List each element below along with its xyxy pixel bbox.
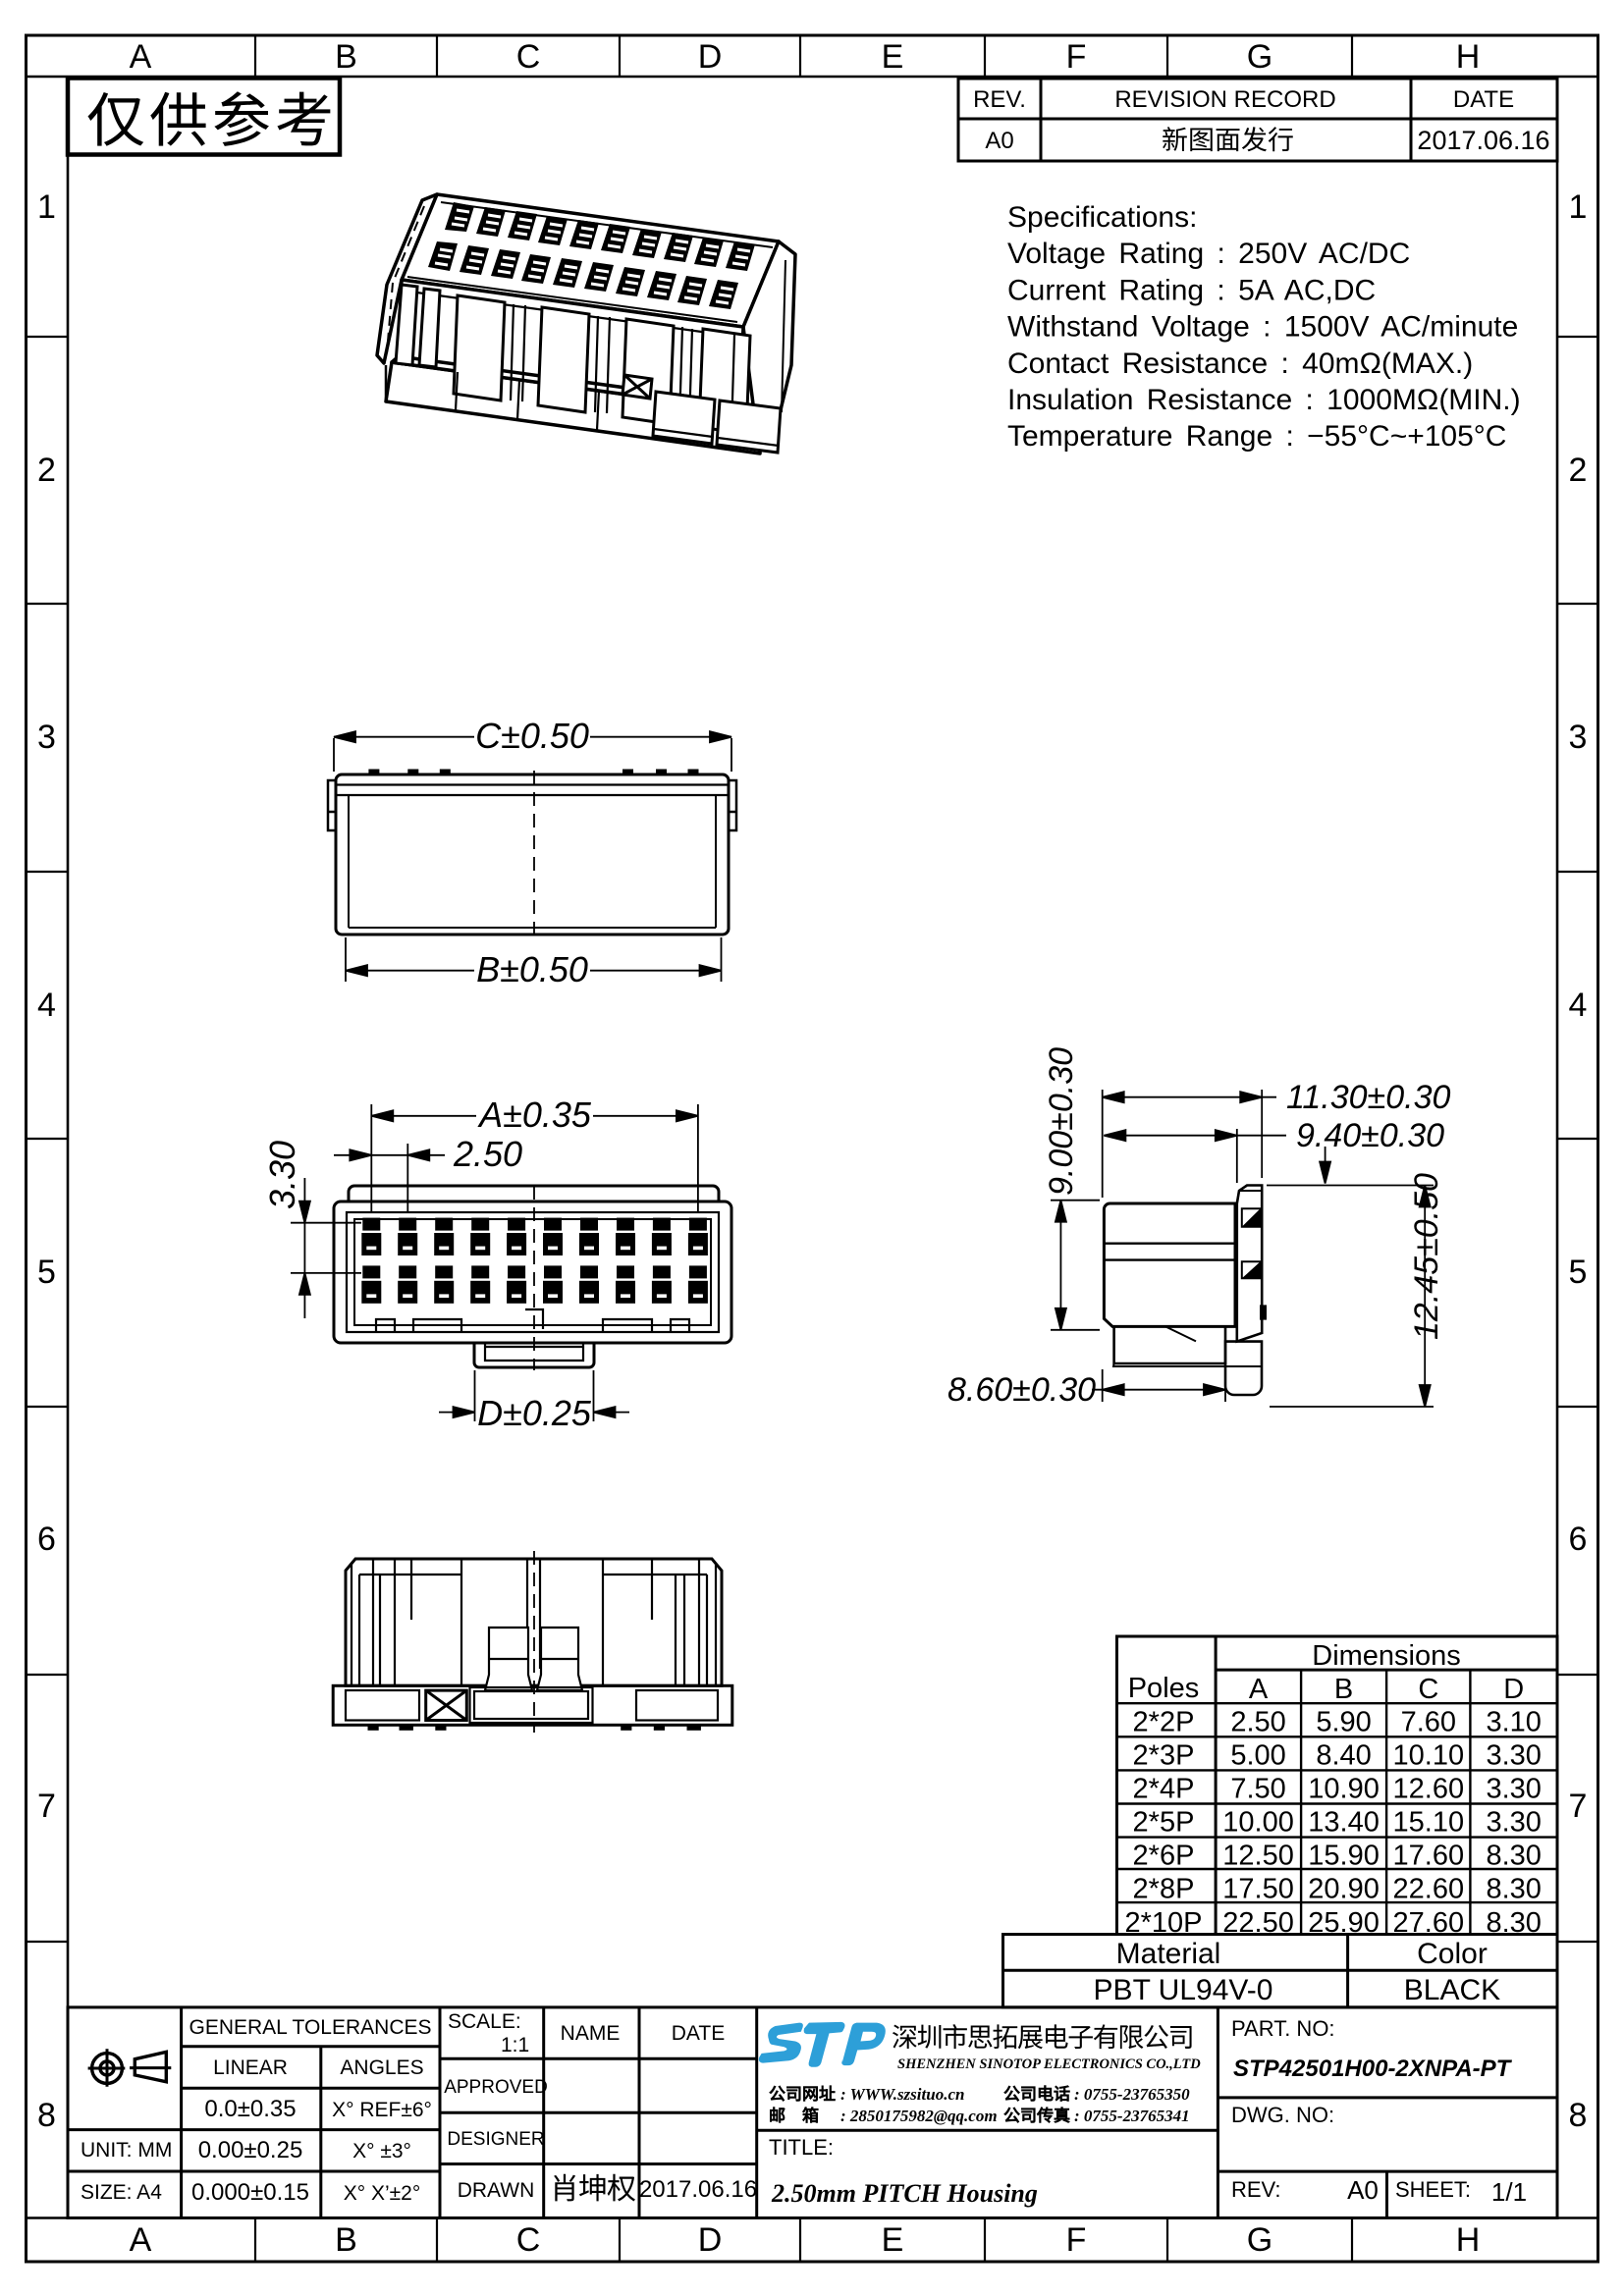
svg-text:2.50: 2.50 — [453, 1134, 522, 1174]
svg-text:7: 7 — [37, 1788, 56, 1825]
svg-text:: 2850175982@qq.com: : 2850175982@qq.com — [840, 2107, 998, 2125]
svg-text:REV.: REV. — [973, 86, 1026, 113]
svg-text:8.30: 8.30 — [1486, 1841, 1541, 1872]
svg-text:17.60: 17.60 — [1393, 1841, 1465, 1872]
svg-text:3: 3 — [1569, 719, 1588, 756]
svg-text:SCALE:: SCALE: — [448, 2010, 521, 2033]
svg-text:2.50mm PITCH Housing: 2.50mm PITCH Housing — [771, 2179, 1038, 2208]
svg-text:0.0±0.35: 0.0±0.35 — [204, 2096, 296, 2122]
svg-text:2: 2 — [37, 452, 56, 489]
svg-text:: 0755-23765350: : 0755-23765350 — [1074, 2085, 1190, 2104]
svg-text:2*8P: 2*8P — [1133, 1874, 1195, 1905]
svg-text:Insulation Resistance : 100: Insulation Resistance : 1000MΩ(MIN.) — [1007, 384, 1521, 416]
svg-text:BLACK: BLACK — [1404, 1974, 1500, 2006]
svg-text:Specifications:: Specifications: — [1007, 201, 1197, 234]
svg-text:G: G — [1247, 38, 1272, 76]
svg-text:DESIGNER: DESIGNER — [447, 2129, 544, 2150]
svg-text:15.90: 15.90 — [1308, 1841, 1380, 1872]
svg-text:Contact Resistance : 40mΩ(M: Contact Resistance : 40mΩ(MAX.) — [1007, 347, 1473, 380]
svg-text:X° ±3°: X° ±3° — [352, 2140, 411, 2163]
svg-text:PBT UL94V-0: PBT UL94V-0 — [1094, 1974, 1273, 2006]
svg-text:15.10: 15.10 — [1393, 1807, 1465, 1839]
svg-text:1/1: 1/1 — [1491, 2177, 1527, 2207]
svg-text:20.90: 20.90 — [1308, 1874, 1380, 1905]
svg-text:STP42501H00-2XNPA-PT: STP42501H00-2XNPA-PT — [1233, 2056, 1513, 2082]
svg-text:ANGLES: ANGLES — [340, 2056, 423, 2079]
svg-text:NAME: NAME — [561, 2022, 621, 2045]
svg-text:2*6P: 2*6P — [1133, 1841, 1195, 1872]
svg-text:6: 6 — [37, 1521, 56, 1558]
svg-text:Material: Material — [1116, 1938, 1221, 1970]
svg-text:PART. NO:: PART. NO: — [1231, 2016, 1335, 2041]
svg-text:2*4P: 2*4P — [1133, 1774, 1195, 1805]
svg-text:B±0.50: B±0.50 — [476, 949, 588, 989]
svg-text:C: C — [516, 2221, 541, 2259]
svg-text:C: C — [516, 38, 541, 76]
svg-text:9.00±0.30: 9.00±0.30 — [1043, 1047, 1080, 1196]
svg-text:LINEAR: LINEAR — [213, 2056, 288, 2079]
svg-text:13.40: 13.40 — [1308, 1807, 1380, 1839]
svg-text:5.90: 5.90 — [1316, 1707, 1371, 1738]
svg-text:2017.06.16: 2017.06.16 — [1417, 126, 1549, 155]
svg-text:1: 1 — [1569, 188, 1588, 226]
svg-text:4: 4 — [1569, 987, 1588, 1024]
svg-text:SIZE: A4: SIZE: A4 — [81, 2181, 162, 2204]
svg-text:Temperature Range : −55°C~+: Temperature Range : −55°C~+105°C — [1007, 420, 1506, 453]
svg-text:X° X’±2°: X° X’±2° — [344, 2182, 421, 2205]
svg-text:: 0755-23765341: : 0755-23765341 — [1074, 2107, 1190, 2125]
svg-text:3.30: 3.30 — [1486, 1807, 1541, 1839]
svg-text:Poles: Poles — [1128, 1673, 1200, 1704]
svg-text:Withstand Voltage : 1500V: Withstand Voltage : 1500V AC/minute — [1007, 311, 1518, 344]
svg-text:12.60: 12.60 — [1393, 1774, 1465, 1805]
svg-text:8.40: 8.40 — [1316, 1740, 1371, 1772]
svg-text:B: B — [1334, 1674, 1353, 1705]
svg-text:A: A — [1249, 1674, 1269, 1705]
svg-text:2.50: 2.50 — [1230, 1707, 1285, 1738]
svg-text:C±0.50: C±0.50 — [475, 716, 589, 756]
svg-text:5: 5 — [37, 1254, 56, 1291]
svg-text:D: D — [698, 2221, 723, 2259]
svg-text:10.10: 10.10 — [1393, 1740, 1465, 1772]
svg-text:A0: A0 — [985, 128, 1013, 154]
svg-text:F: F — [1066, 2221, 1087, 2259]
svg-text:D: D — [698, 38, 723, 76]
svg-text:F: F — [1066, 38, 1087, 76]
svg-text:5.00: 5.00 — [1230, 1740, 1285, 1772]
svg-text:2*5P: 2*5P — [1133, 1807, 1195, 1839]
svg-text:7.50: 7.50 — [1230, 1774, 1285, 1805]
svg-text:Voltage Rating : 250V AC/D: Voltage Rating : 250V AC/DC — [1007, 238, 1410, 270]
svg-text:A0: A0 — [1347, 2175, 1379, 2205]
svg-text:3.30: 3.30 — [262, 1141, 302, 1209]
svg-text:2: 2 — [1569, 452, 1588, 489]
svg-text:REV:: REV: — [1231, 2177, 1281, 2202]
svg-text:A: A — [130, 2221, 152, 2259]
svg-text:1: 1 — [37, 188, 56, 226]
svg-text:8.60±0.30: 8.60±0.30 — [947, 1371, 1096, 1409]
svg-text:X° REF±6°: X° REF±6° — [332, 2099, 432, 2121]
svg-text:1:1: 1:1 — [501, 2034, 529, 2056]
svg-text:: WWW.szsituo.cn: : WWW.szsituo.cn — [840, 2085, 964, 2104]
svg-text:7.60: 7.60 — [1401, 1707, 1456, 1738]
svg-text:B: B — [335, 38, 357, 76]
svg-text:Color: Color — [1417, 1938, 1488, 1970]
svg-text:10.90: 10.90 — [1308, 1774, 1380, 1805]
svg-text:2017.06.16: 2017.06.16 — [639, 2176, 757, 2203]
svg-text:10.00: 10.00 — [1222, 1807, 1294, 1839]
svg-text:H: H — [1456, 2221, 1481, 2259]
svg-text:0.00±0.25: 0.00±0.25 — [198, 2137, 303, 2163]
svg-text:SHENZHEN SINOTOP ELECTRONICS C: SHENZHEN SINOTOP ELECTRONICS CO.,LTD — [897, 2056, 1201, 2072]
svg-text:UNIT: MM: UNIT: MM — [81, 2139, 172, 2162]
svg-text:8.30: 8.30 — [1486, 1874, 1541, 1905]
svg-text:GENERAL TOLERANCES: GENERAL TOLERANCES — [189, 2016, 431, 2039]
svg-text:3.30: 3.30 — [1486, 1740, 1541, 1772]
svg-text:11.30±0.30: 11.30±0.30 — [1286, 1079, 1450, 1116]
svg-text:E: E — [882, 2221, 904, 2259]
svg-text:E: E — [882, 38, 904, 76]
svg-text:TITLE:: TITLE: — [769, 2135, 834, 2160]
svg-text:DATE: DATE — [672, 2022, 725, 2045]
svg-text:DWG. NO:: DWG. NO: — [1231, 2103, 1334, 2127]
svg-text:5: 5 — [1569, 1254, 1588, 1291]
svg-text:A±0.35: A±0.35 — [477, 1095, 592, 1135]
svg-text:REVISION RECORD: REVISION RECORD — [1114, 86, 1335, 113]
svg-text:APPROVED: APPROVED — [444, 2077, 548, 2098]
svg-text:D: D — [1503, 1674, 1524, 1705]
svg-text:DATE: DATE — [1453, 86, 1514, 113]
svg-text:H: H — [1456, 38, 1481, 76]
svg-text:0.000±0.15: 0.000±0.15 — [191, 2179, 309, 2206]
svg-text:3.10: 3.10 — [1486, 1707, 1541, 1738]
svg-text:C: C — [1418, 1674, 1438, 1705]
svg-text:3.30: 3.30 — [1486, 1774, 1541, 1805]
svg-text:G: G — [1247, 2221, 1272, 2259]
svg-text:D±0.25: D±0.25 — [477, 1393, 592, 1433]
svg-text:2*2P: 2*2P — [1133, 1707, 1195, 1738]
svg-text:Dimensions: Dimensions — [1312, 1640, 1461, 1672]
svg-text:8: 8 — [1569, 2097, 1588, 2134]
svg-text:Current Rating : 5A AC,DC: Current Rating : 5A AC,DC — [1007, 274, 1376, 306]
svg-text:6: 6 — [1569, 1521, 1588, 1558]
svg-text:A: A — [130, 38, 152, 76]
svg-text:2*3P: 2*3P — [1133, 1740, 1195, 1772]
svg-text:DRAWN: DRAWN — [458, 2179, 535, 2202]
svg-text:4: 4 — [37, 987, 56, 1024]
svg-text:SHEET:: SHEET: — [1395, 2177, 1471, 2202]
svg-text:7: 7 — [1569, 1788, 1588, 1825]
svg-text:12.50: 12.50 — [1222, 1841, 1294, 1872]
svg-text:B: B — [335, 2221, 357, 2259]
svg-text:12.45±0.50: 12.45±0.50 — [1408, 1173, 1445, 1340]
svg-text:8: 8 — [37, 2097, 56, 2134]
svg-text:9.40±0.30: 9.40±0.30 — [1296, 1117, 1444, 1154]
svg-text:3: 3 — [37, 719, 56, 756]
svg-text:22.60: 22.60 — [1393, 1874, 1465, 1905]
svg-text:17.50: 17.50 — [1222, 1874, 1294, 1905]
